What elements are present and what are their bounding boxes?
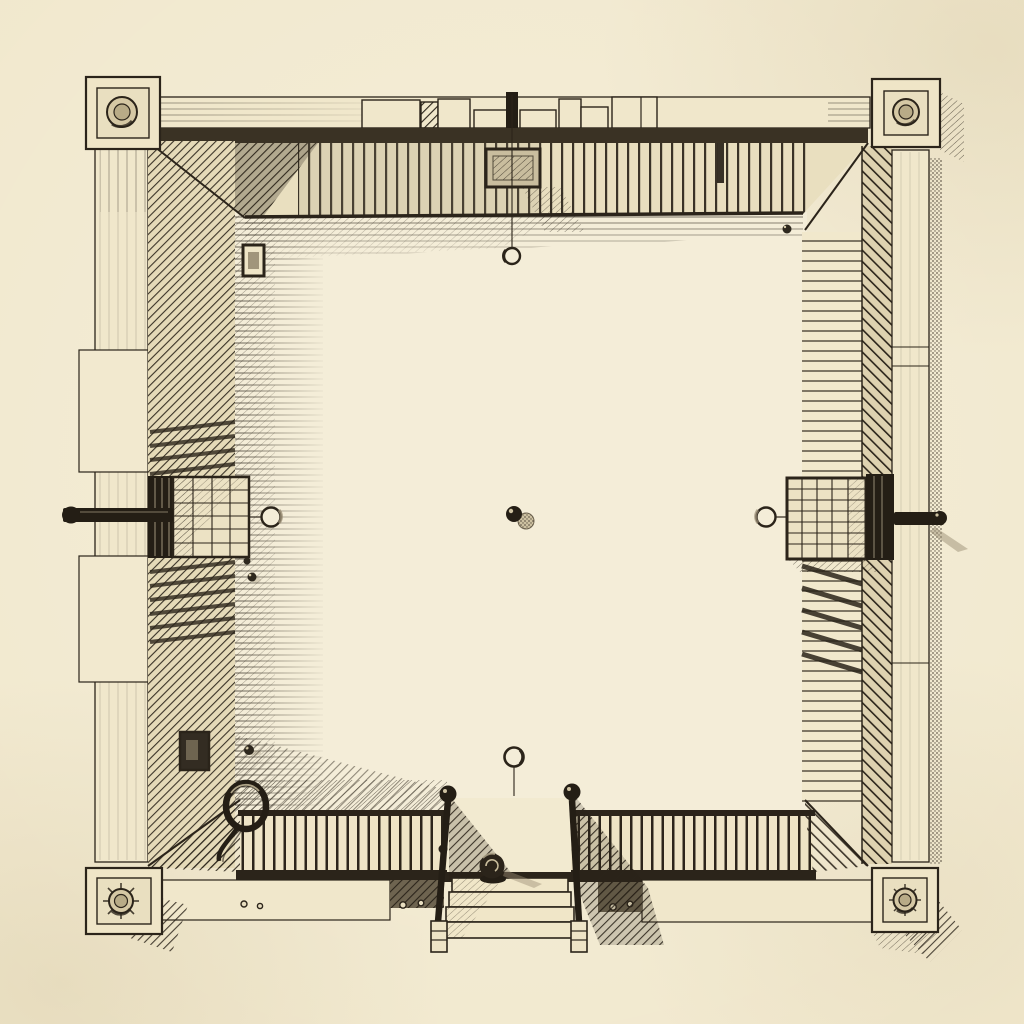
bottom-top-rail-right	[569, 810, 815, 816]
right-grid-shadow	[788, 559, 880, 572]
beam-shadow-right	[828, 99, 870, 126]
dark-plaque	[180, 732, 209, 770]
bottom-outer-band-left	[160, 880, 390, 920]
left-ring-marker	[262, 508, 282, 527]
small-ball-top-right	[783, 225, 792, 234]
small-plaque	[243, 245, 264, 276]
top-right-cap-shadow	[940, 92, 964, 162]
left-peg	[62, 507, 173, 524]
corner-post-bottom-right	[872, 868, 962, 962]
left-outer-post-upper	[79, 350, 148, 472]
right-ring-marker	[756, 508, 776, 527]
center-ball-highlight	[509, 509, 513, 513]
bottom-outer-band-right	[642, 880, 905, 922]
plumb-ball-top	[504, 248, 520, 264]
left-grid-platform	[173, 477, 249, 557]
plan-drawing	[0, 0, 1024, 1024]
bottom-top-rail-left	[238, 810, 449, 816]
top-wall-texture	[150, 143, 806, 219]
top-rail	[150, 128, 868, 143]
right-stippled-edge	[929, 158, 942, 864]
small-ball-highlight	[784, 226, 786, 228]
railing-left-balusters	[240, 813, 447, 872]
aged-paper-background	[0, 0, 1024, 1024]
right-grid-platform	[787, 478, 866, 559]
center-ball-dark	[506, 506, 522, 522]
left-rail-streaks	[97, 150, 146, 860]
right-gate-opening	[866, 474, 894, 560]
bottom-recess-left	[390, 880, 444, 908]
left-outer-post-lower	[79, 556, 148, 682]
